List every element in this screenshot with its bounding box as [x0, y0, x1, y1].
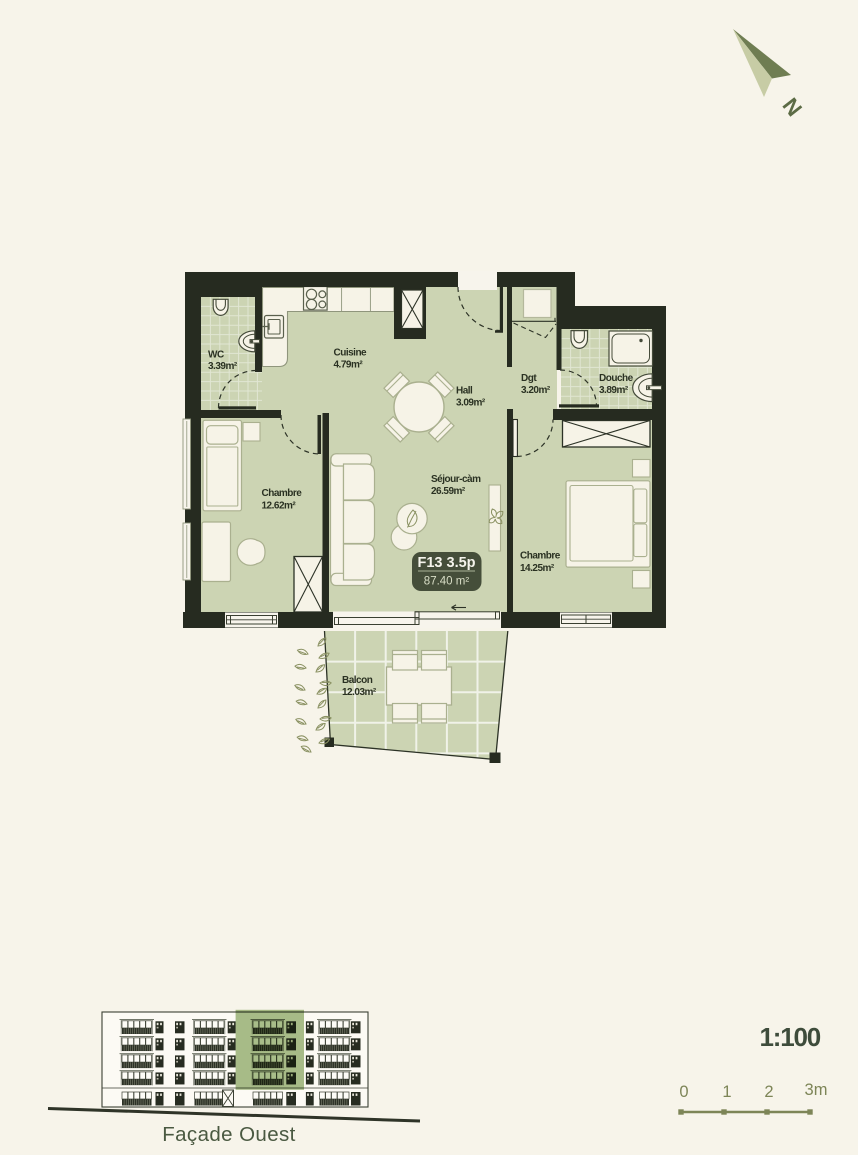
svg-text:WC: WC — [208, 350, 224, 361]
svg-text:12.62m²: 12.62m² — [262, 501, 297, 512]
svg-text:2: 2 — [764, 1083, 773, 1101]
svg-text:87.40 m²: 87.40 m² — [424, 576, 470, 588]
svg-text:14.25m²: 14.25m² — [520, 563, 555, 574]
svg-text:4.79m²: 4.79m² — [334, 360, 364, 371]
svg-text:Façade Ouest: Façade Ouest — [162, 1123, 296, 1146]
svg-text:3.09m²: 3.09m² — [456, 398, 486, 409]
svg-text:1:100: 1:100 — [760, 1022, 821, 1052]
svg-text:3.20m²: 3.20m² — [521, 385, 551, 396]
svg-text:26.59m²: 26.59m² — [431, 486, 466, 497]
svg-text:Balcon: Balcon — [342, 675, 373, 686]
svg-text:0: 0 — [679, 1083, 688, 1101]
svg-text:3.39m²: 3.39m² — [208, 361, 238, 372]
svg-text:Chambre: Chambre — [520, 551, 561, 562]
svg-text:1: 1 — [722, 1083, 731, 1101]
svg-text:3m: 3m — [805, 1081, 828, 1099]
svg-text:Chambre: Chambre — [262, 488, 303, 499]
svg-text:12.03m²: 12.03m² — [342, 687, 377, 698]
svg-text:F13 3.5p: F13 3.5p — [417, 555, 475, 571]
svg-text:Cuisine: Cuisine — [334, 348, 368, 359]
svg-text:Hall: Hall — [456, 386, 473, 397]
svg-text:Douche: Douche — [599, 373, 634, 384]
svg-text:Dgt: Dgt — [521, 373, 537, 384]
svg-text:3.89m²: 3.89m² — [599, 385, 629, 396]
svg-text:Séjour-càm: Séjour-càm — [431, 474, 481, 485]
